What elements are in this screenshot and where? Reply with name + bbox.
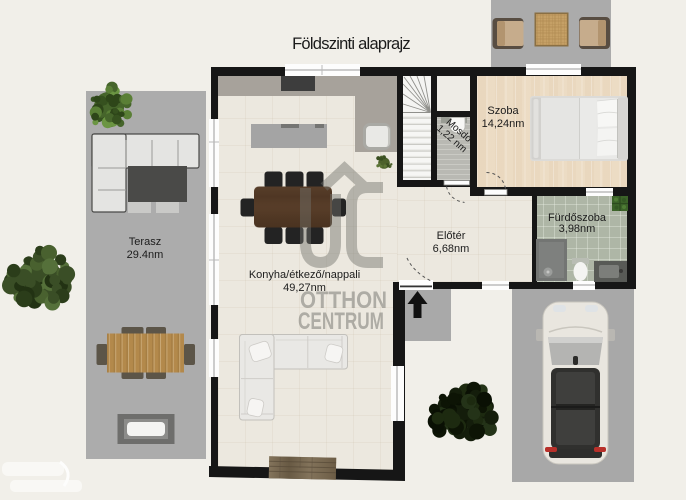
svg-text:CENTRUM: CENTRUM [298, 308, 384, 335]
